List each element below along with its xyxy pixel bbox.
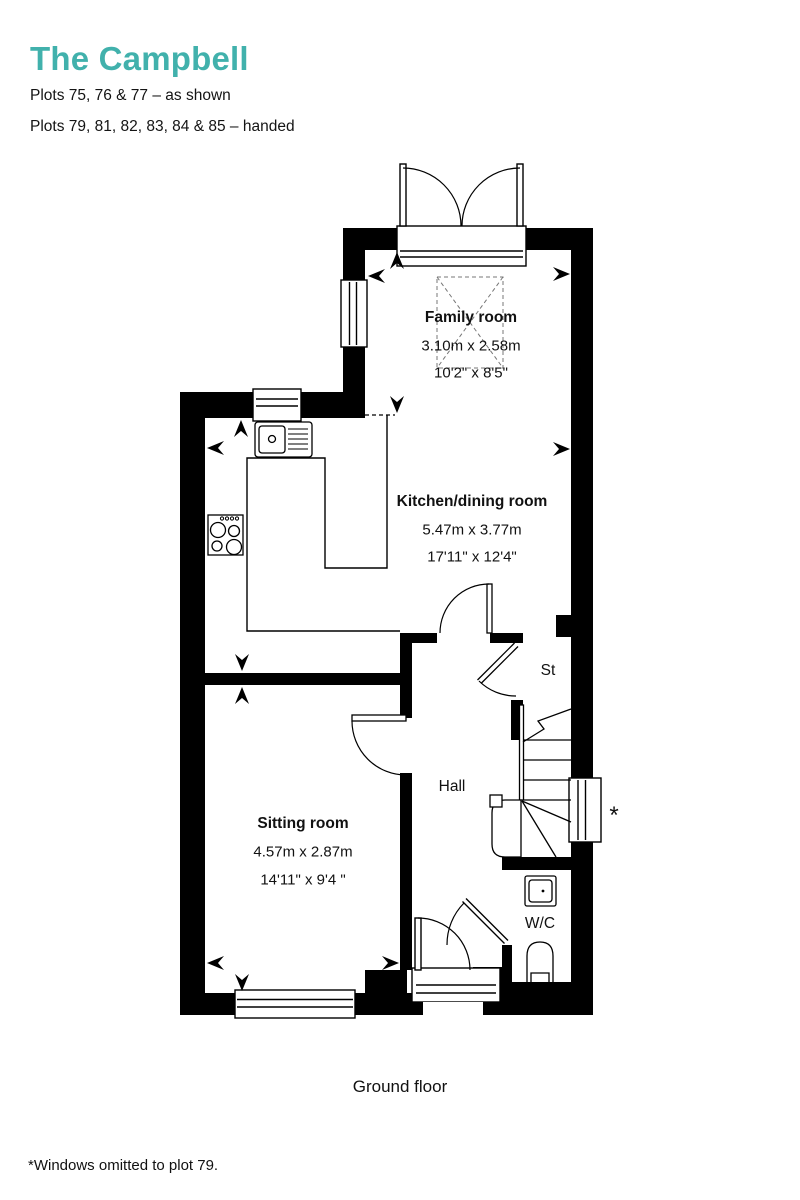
floor-title: Ground floor (353, 1077, 448, 1097)
kitchen-imperial: 17'11" x 12'4" (427, 549, 517, 566)
wc-door (447, 899, 508, 946)
stair-window (569, 778, 601, 842)
sitting-room-door (352, 715, 406, 775)
sitting-room-window (235, 990, 355, 1018)
family-room-imperial: 10'2" x 8'5" (434, 365, 508, 382)
sitting-room-label: Sitting room (257, 815, 348, 833)
window-note-marker: * (609, 802, 618, 830)
sitting-room-metric: 4.57m x 2.87m (253, 844, 352, 861)
stair-break-line (523, 709, 571, 742)
footnote: *Windows omitted to plot 79. (28, 1157, 218, 1174)
floorplan-page: The Campbell Plots 75, 76 & 77 – as show… (0, 0, 800, 1200)
page-title: The Campbell (30, 40, 249, 78)
kitchen-sink (255, 422, 312, 457)
kitchen-door (440, 584, 492, 633)
wc-label: W/C (525, 915, 555, 933)
kitchen-window (253, 389, 301, 421)
front-door (412, 918, 500, 1015)
sitting-room-imperial: 14'11" x 9'4 " (260, 872, 345, 889)
kitchen-metric: 5.47m x 3.77m (422, 522, 521, 539)
stair-newel (492, 800, 521, 857)
plots-as-shown: Plots 75, 76 & 77 – as shown (30, 87, 231, 105)
family-room-metric: 3.10m x 2.58m (421, 338, 520, 355)
plots-handed: Plots 79, 81, 82, 83, 84 & 85 – handed (30, 118, 295, 136)
french-doors (397, 164, 526, 266)
store-door (478, 643, 519, 696)
family-room-window (341, 280, 367, 347)
family-room-label: Family room (425, 309, 517, 327)
wc-toilet (527, 942, 553, 982)
windows (235, 280, 601, 1018)
hall-label: Hall (439, 778, 466, 796)
stairs (490, 705, 571, 857)
wc-basin (525, 876, 556, 906)
kitchen-hob (208, 515, 243, 555)
kitchen-label: Kitchen/dining room (397, 493, 548, 511)
store-label: St (541, 662, 556, 680)
floorplan-drawing (0, 0, 800, 1200)
